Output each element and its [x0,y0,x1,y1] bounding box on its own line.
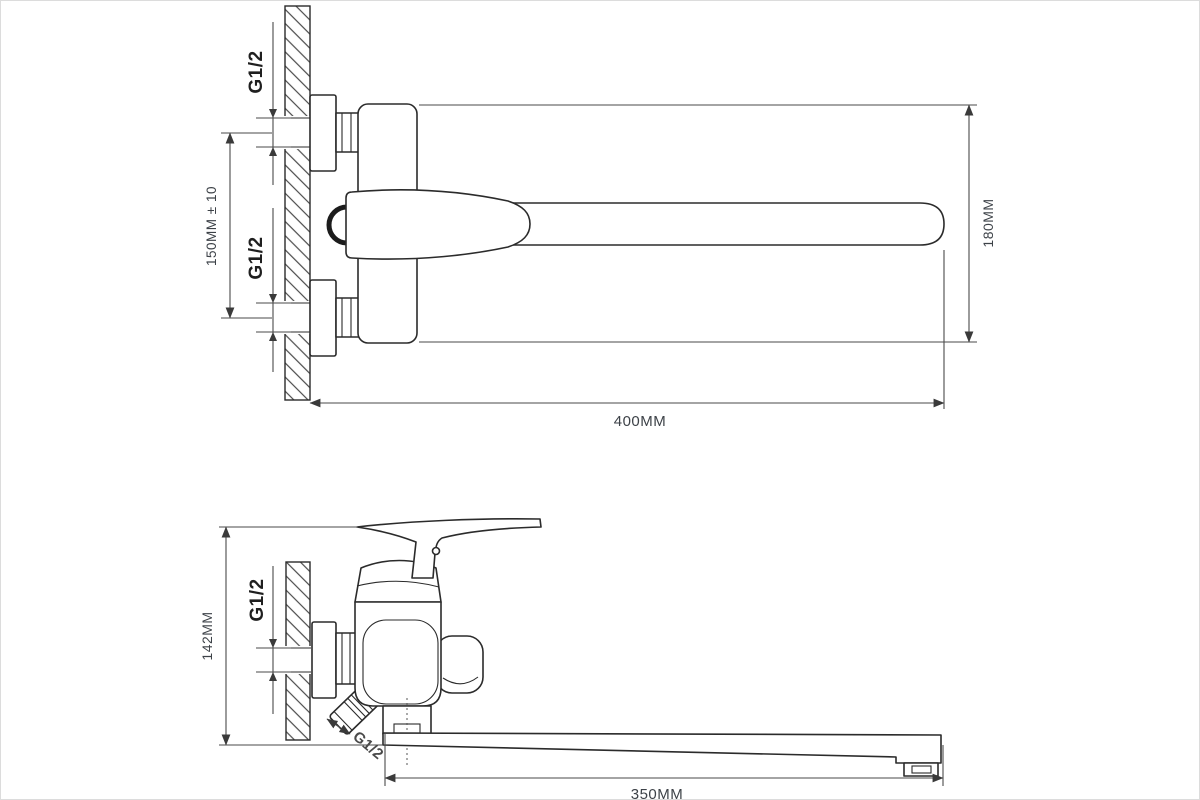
thread-callout-bottom-inlet: G1/2 [246,208,291,372]
side-inlet-pipe [274,646,311,674]
handle-top-view [329,190,530,259]
dim-spout-reach-label: 400MM [614,413,667,430]
technical-drawing-page: G1/2 G1/2 150MM ± 10 180MM 400MM [0,0,1200,800]
thread-label-shower-outlet: G1/2 [349,728,386,763]
side-mounting-flange [312,622,358,698]
dim-spout-length-label: 350MM [631,786,684,800]
thread-callout-top-inlet: G1/2 [246,22,291,185]
spout-side-view [383,733,941,776]
spout-top-view [510,203,944,245]
aerator [904,763,938,776]
dimension-body-height: 180MM [969,105,996,342]
side-view: G1/2 G1/2 142MM 350MM [199,519,943,800]
dim-overall-height-label: 142MM [199,611,215,660]
thread-callout-side-inlet: G1/2 [247,566,291,714]
dim-body-height-label: 180MM [980,198,996,247]
handle-screw [433,548,440,555]
dimension-inlet-spacing: 150MM ± 10 [204,133,272,318]
mixer-body-side-view [355,561,441,707]
top-view: G1/2 G1/2 150MM ± 10 180MM 400MM [204,6,996,430]
top-inlet-pipe [272,116,312,149]
wall-section-top-view [285,6,310,400]
bottom-mounting-flange [310,280,359,356]
thread-label-side-inlet: G1/2 [247,578,268,621]
top-mounting-flange [310,95,359,171]
diverter-knob [436,636,483,693]
thread-label-top-inlet: G1/2 [246,50,267,93]
image-border [1,1,1200,800]
handle-knob [329,207,347,243]
bottom-inlet-pipe [272,301,312,334]
dim-inlet-spacing-label: 150MM ± 10 [204,186,219,266]
faucet-technical-drawing: G1/2 G1/2 150MM ± 10 180MM 400MM [0,0,1200,800]
thread-label-bottom-inlet: G1/2 [246,236,267,279]
